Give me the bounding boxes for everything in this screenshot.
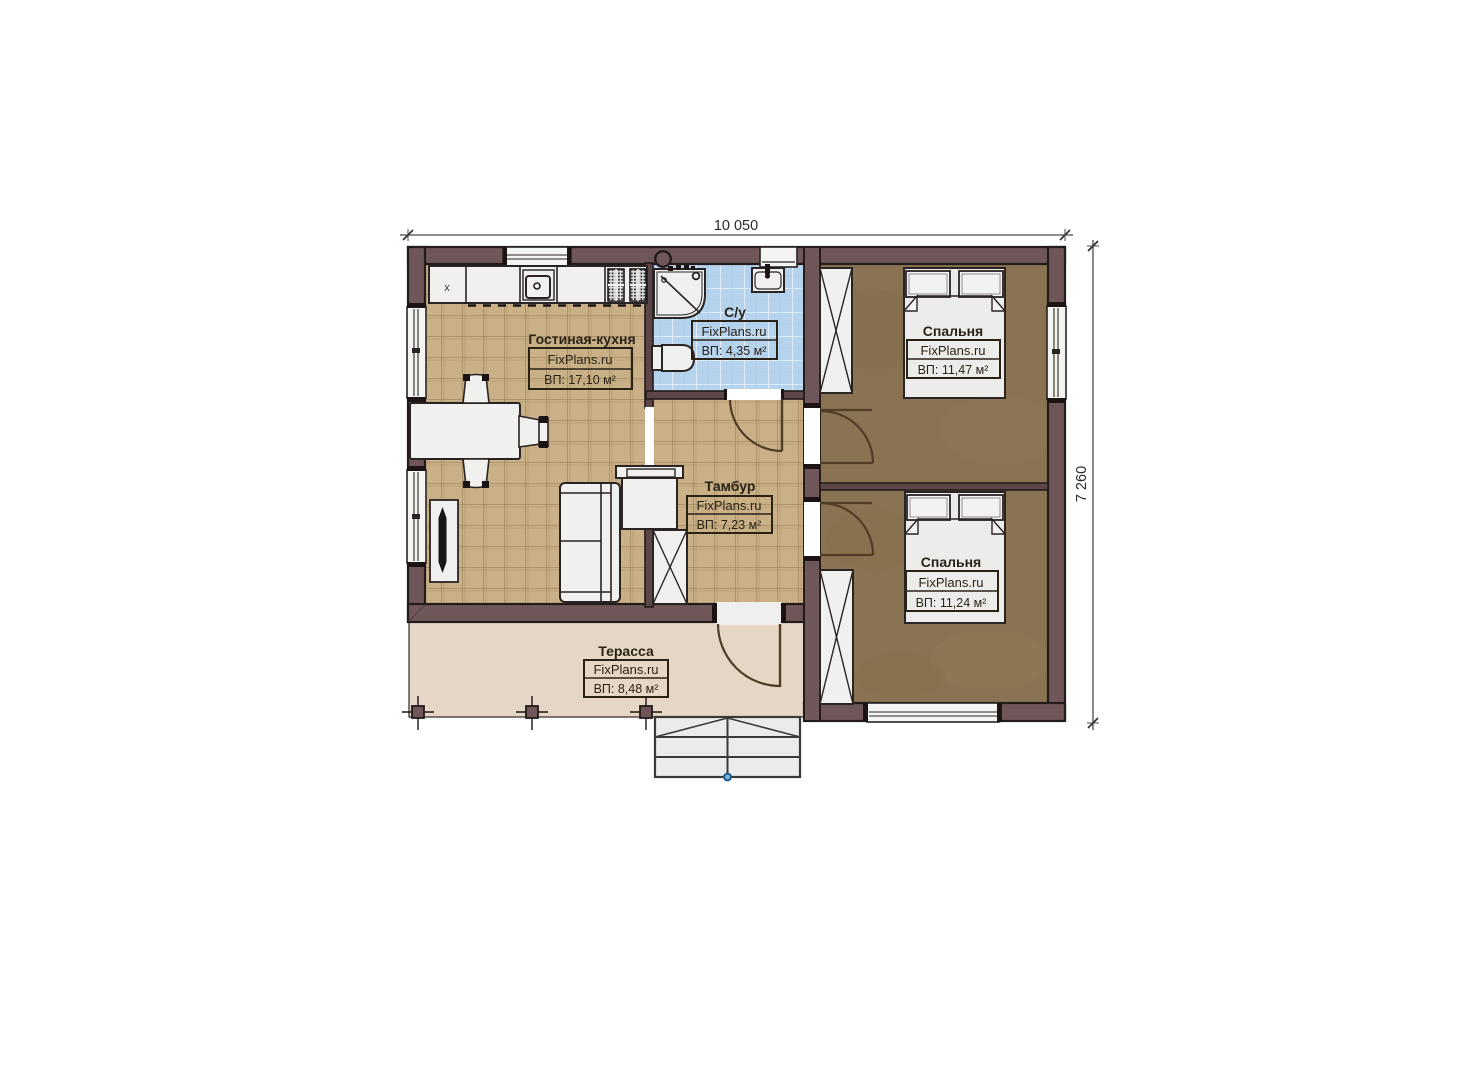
svg-text:FixPlans.ru: FixPlans.ru: [593, 662, 658, 677]
svg-text:ВП: 11,47 м²: ВП: 11,47 м²: [918, 363, 989, 377]
svg-text:FixPlans.ru: FixPlans.ru: [920, 343, 985, 358]
svg-text:Гостиная-кухня: Гостиная-кухня: [528, 331, 635, 347]
svg-text:Спальня: Спальня: [923, 323, 983, 339]
svg-text:Тамбур: Тамбур: [705, 478, 756, 494]
svg-text:10 050: 10 050: [714, 218, 758, 234]
svg-text:ВП: 8,48 м²: ВП: 8,48 м²: [594, 682, 659, 696]
svg-text:x: x: [444, 282, 450, 294]
svg-text:FixPlans.ru: FixPlans.ru: [696, 498, 761, 513]
svg-text:FixPlans.ru: FixPlans.ru: [701, 324, 766, 339]
svg-text:ВП: 4,35 м²: ВП: 4,35 м²: [702, 344, 767, 358]
svg-text:С/у: С/у: [724, 304, 746, 320]
svg-text:Спальня: Спальня: [921, 554, 981, 570]
svg-text:ВП: 11,24 м²: ВП: 11,24 м²: [916, 596, 987, 610]
svg-text:Терасса: Терасса: [598, 643, 654, 659]
svg-text:7 260: 7 260: [1074, 466, 1090, 502]
svg-text:ВП: 7,23 м²: ВП: 7,23 м²: [697, 518, 762, 532]
svg-text:FixPlans.ru: FixPlans.ru: [918, 575, 983, 590]
svg-text:FixPlans.ru: FixPlans.ru: [547, 352, 612, 367]
svg-text:ВП: 17,10 м²: ВП: 17,10 м²: [544, 373, 616, 387]
